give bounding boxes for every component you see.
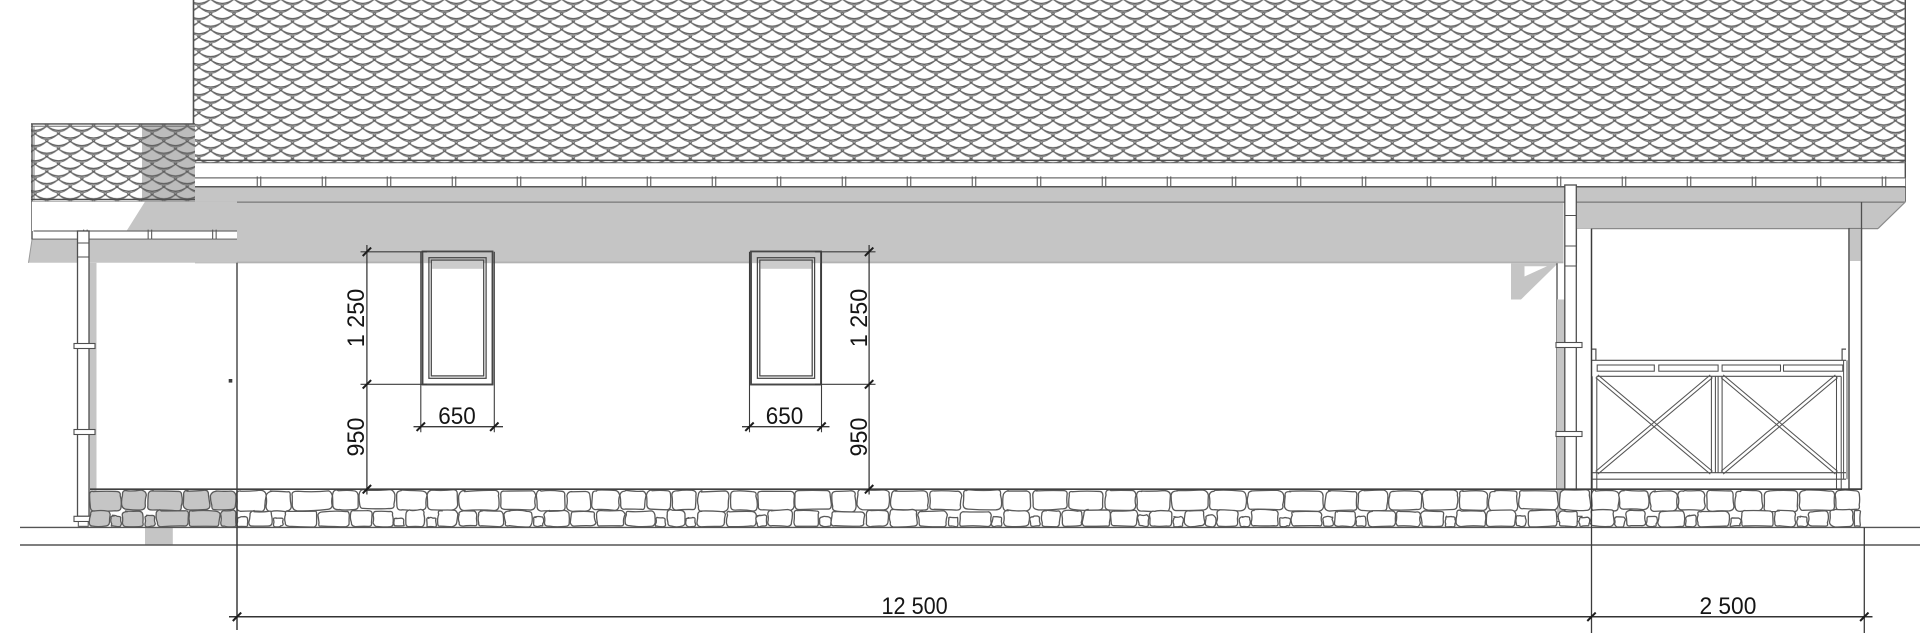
svg-text:950: 950 xyxy=(343,418,370,457)
svg-text:12 500: 12 500 xyxy=(881,593,947,620)
svg-text:1 250: 1 250 xyxy=(343,289,370,347)
svg-text:2 500: 2 500 xyxy=(1699,593,1756,620)
svg-text:1 250: 1 250 xyxy=(846,289,873,347)
svg-text:650: 650 xyxy=(766,403,804,430)
svg-text:950: 950 xyxy=(846,418,873,457)
svg-text:650: 650 xyxy=(438,403,476,430)
